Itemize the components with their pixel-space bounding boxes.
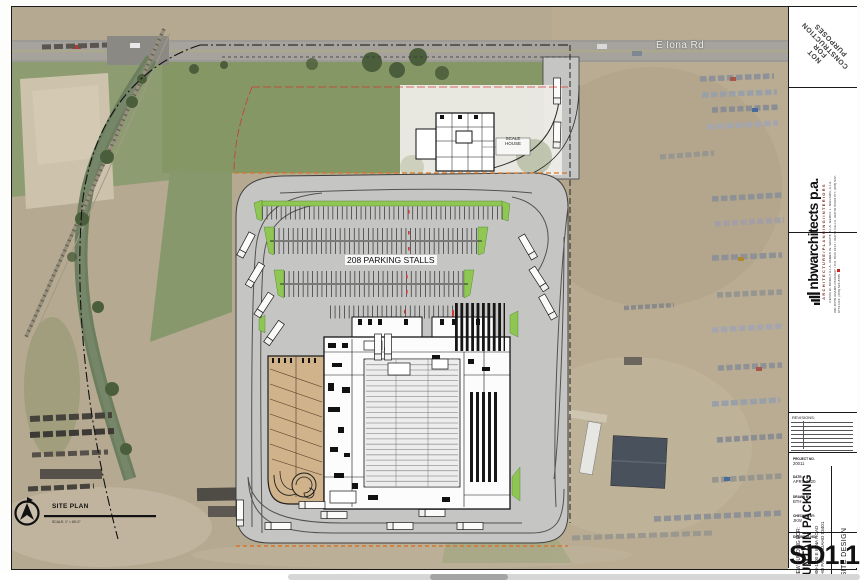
checked-by: JKW	[793, 518, 815, 523]
title-block: NOT FOR CONSTRUCTION PURPOSES	[788, 7, 857, 568]
drawing-no: SD1.1	[789, 540, 857, 571]
horizontal-scrollbar-track[interactable]	[288, 574, 860, 580]
revisions-label: REVISIONS:	[792, 415, 815, 420]
info-section: PROJECT NO. 20011 DATE: APRIL 2020 DRAWN…	[789, 453, 857, 533]
sheet: E Iona Rd 208 PARKING STALLS SCALE HOUSE…	[0, 0, 860, 572]
stamp-section: NOT FOR CONSTRUCTION PURPOSES	[789, 7, 857, 88]
date-value: APRIL 2020	[793, 479, 815, 484]
horizontal-scrollbar-thumb[interactable]	[430, 574, 508, 580]
project-no: 20011	[793, 461, 815, 466]
not-for-construction-stamp: NOT FOR CONSTRUCTION PURPOSES	[790, 15, 855, 80]
drawn-by: BTH	[793, 499, 811, 504]
firm-section: nbwarchitects p.a. ARCHITECTURE/PLANNING…	[789, 88, 857, 233]
drawing-no-section: DRAWING NO. SD1.1	[789, 533, 857, 568]
project-section: PROJECT: NEW BUILDING FOR: INTERMOUNTAIN…	[789, 233, 857, 413]
sheet-border	[11, 6, 857, 570]
drawing-no-label: DRAWING NO.	[793, 535, 816, 539]
revisions-section: REVISIONS:	[789, 413, 857, 453]
drawing-viewer: E Iona Rd 208 PARKING STALLS SCALE HOUSE…	[0, 0, 860, 580]
